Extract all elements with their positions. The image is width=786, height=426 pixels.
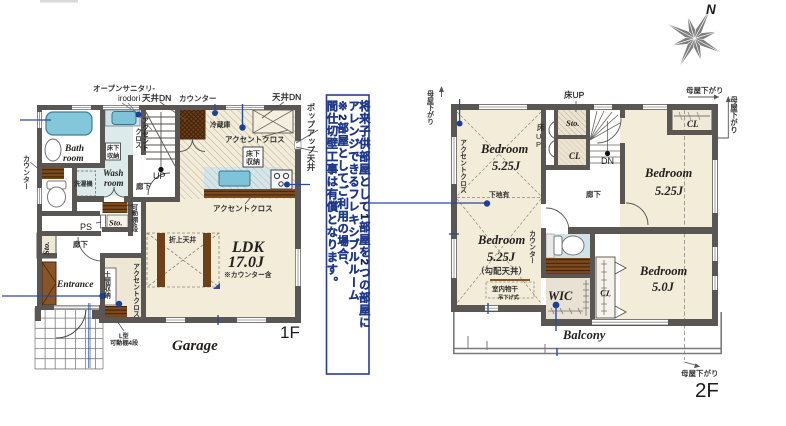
svg-text:Sto.: Sto. (566, 118, 579, 128)
svg-text:収納: 収納 (107, 152, 119, 160)
svg-text:冷蔵庫: 冷蔵庫 (210, 120, 231, 129)
svg-text:床: 床 (537, 122, 545, 132)
svg-text:17.0J: 17.0J (228, 254, 265, 271)
svg-text:WIC: WIC (548, 289, 573, 303)
svg-text:アクセントクロス: アクセントクロス (213, 204, 273, 213)
svg-text:（勾配天井）: （勾配天井） (476, 266, 527, 276)
svg-text:廊下: 廊下 (136, 181, 151, 191)
svg-text:下地有: 下地有 (489, 190, 510, 199)
svg-text:P: P (536, 140, 541, 149)
svg-text:洗濯機: 洗濯機 (74, 180, 93, 188)
svg-text:折上天井: 折上天井 (169, 235, 196, 244)
svg-text:CL: CL (687, 119, 699, 129)
svg-text:CL: CL (600, 287, 612, 298)
svg-text:室内物干: 室内物干 (492, 284, 519, 293)
svg-text:PS: PS (80, 222, 92, 232)
svg-text:カウンター: カウンター (23, 155, 31, 190)
svg-text:Balcony: Balcony (562, 328, 606, 342)
svg-text:天井DN: 天井DN (272, 92, 301, 102)
svg-text:Bedroom: Bedroom (644, 166, 693, 180)
svg-text:5.25J: 5.25J (655, 184, 684, 198)
svg-text:可動棚4段: 可動棚4段 (131, 204, 138, 233)
svg-text:可動棚4段: 可動棚4段 (110, 339, 138, 347)
svg-text:5.0J: 5.0J (652, 280, 675, 294)
svg-text:N: N (706, 2, 716, 17)
svg-text:UP: UP (153, 171, 166, 181)
svg-text:アレンジできるフレキシブルルーム: アレンジできるフレキシブルルーム (347, 100, 360, 302)
svg-text:将来子供部屋として1部屋を2つの部屋に: 将来子供部屋として1部屋を2つの部屋に (358, 99, 372, 329)
svg-text:天井DN: 天井DN (142, 93, 171, 103)
svg-text:母屋下がり: 母屋下がり (427, 90, 435, 125)
svg-text:Bath: Bath (64, 144, 84, 154)
svg-text:irodori: irodori (118, 94, 140, 103)
svg-text:ポップアップ天井: ポップアップ天井 (306, 103, 316, 172)
svg-text:母屋下がり: 母屋下がり (686, 85, 724, 95)
svg-text:※2部屋としてご利用の場合、: ※2部屋としてご利用の場合、 (336, 100, 350, 273)
svg-text:アクセントクロス: アクセントクロス (225, 135, 285, 144)
svg-text:廊下: 廊下 (73, 239, 88, 249)
svg-text:Bedroom: Bedroom (639, 264, 688, 278)
svg-text:Entrance: Entrance (56, 280, 94, 290)
svg-text:母屋下がり: 母屋下がり (681, 368, 719, 378)
svg-text:L型: L型 (119, 332, 129, 340)
svg-text:Sto.: Sto. (41, 242, 51, 255)
svg-text:オープンサニタリ-: オープンサニタリ- (93, 84, 156, 93)
svg-text:吊下げ式: 吊下げ式 (498, 293, 520, 301)
svg-text:5.25J: 5.25J (487, 250, 516, 264)
svg-text:Bedroom: Bedroom (480, 142, 529, 156)
svg-text:床下: 床下 (246, 149, 260, 158)
svg-text:床下: 床下 (107, 144, 119, 152)
svg-text:廊下: 廊下 (586, 189, 601, 199)
svg-text:room: room (63, 154, 84, 164)
svg-text:※カウンター含: ※カウンター含 (224, 270, 272, 279)
svg-text:DN: DN (601, 156, 614, 166)
svg-text:1F: 1F (280, 323, 300, 342)
svg-text:5.25J: 5.25J (492, 159, 521, 173)
svg-text:床UP: 床UP (564, 90, 585, 100)
svg-text:間仕切壁工事は有償となります。: 間仕切壁工事は有償となります。 (325, 100, 339, 289)
svg-text:Bedroom: Bedroom (477, 233, 526, 247)
svg-text:Wash: Wash (103, 168, 123, 178)
svg-text:CL: CL (569, 151, 581, 161)
svg-text:Garage: Garage (172, 338, 218, 354)
svg-text:Sto.: Sto. (109, 218, 122, 228)
svg-text:収納: 収納 (246, 157, 260, 166)
svg-text:2F: 2F (695, 379, 719, 402)
svg-text:母屋下がり: 母屋下がり (729, 96, 738, 134)
svg-text:room: room (104, 178, 124, 188)
svg-text:カウンター: カウンター (179, 94, 217, 103)
